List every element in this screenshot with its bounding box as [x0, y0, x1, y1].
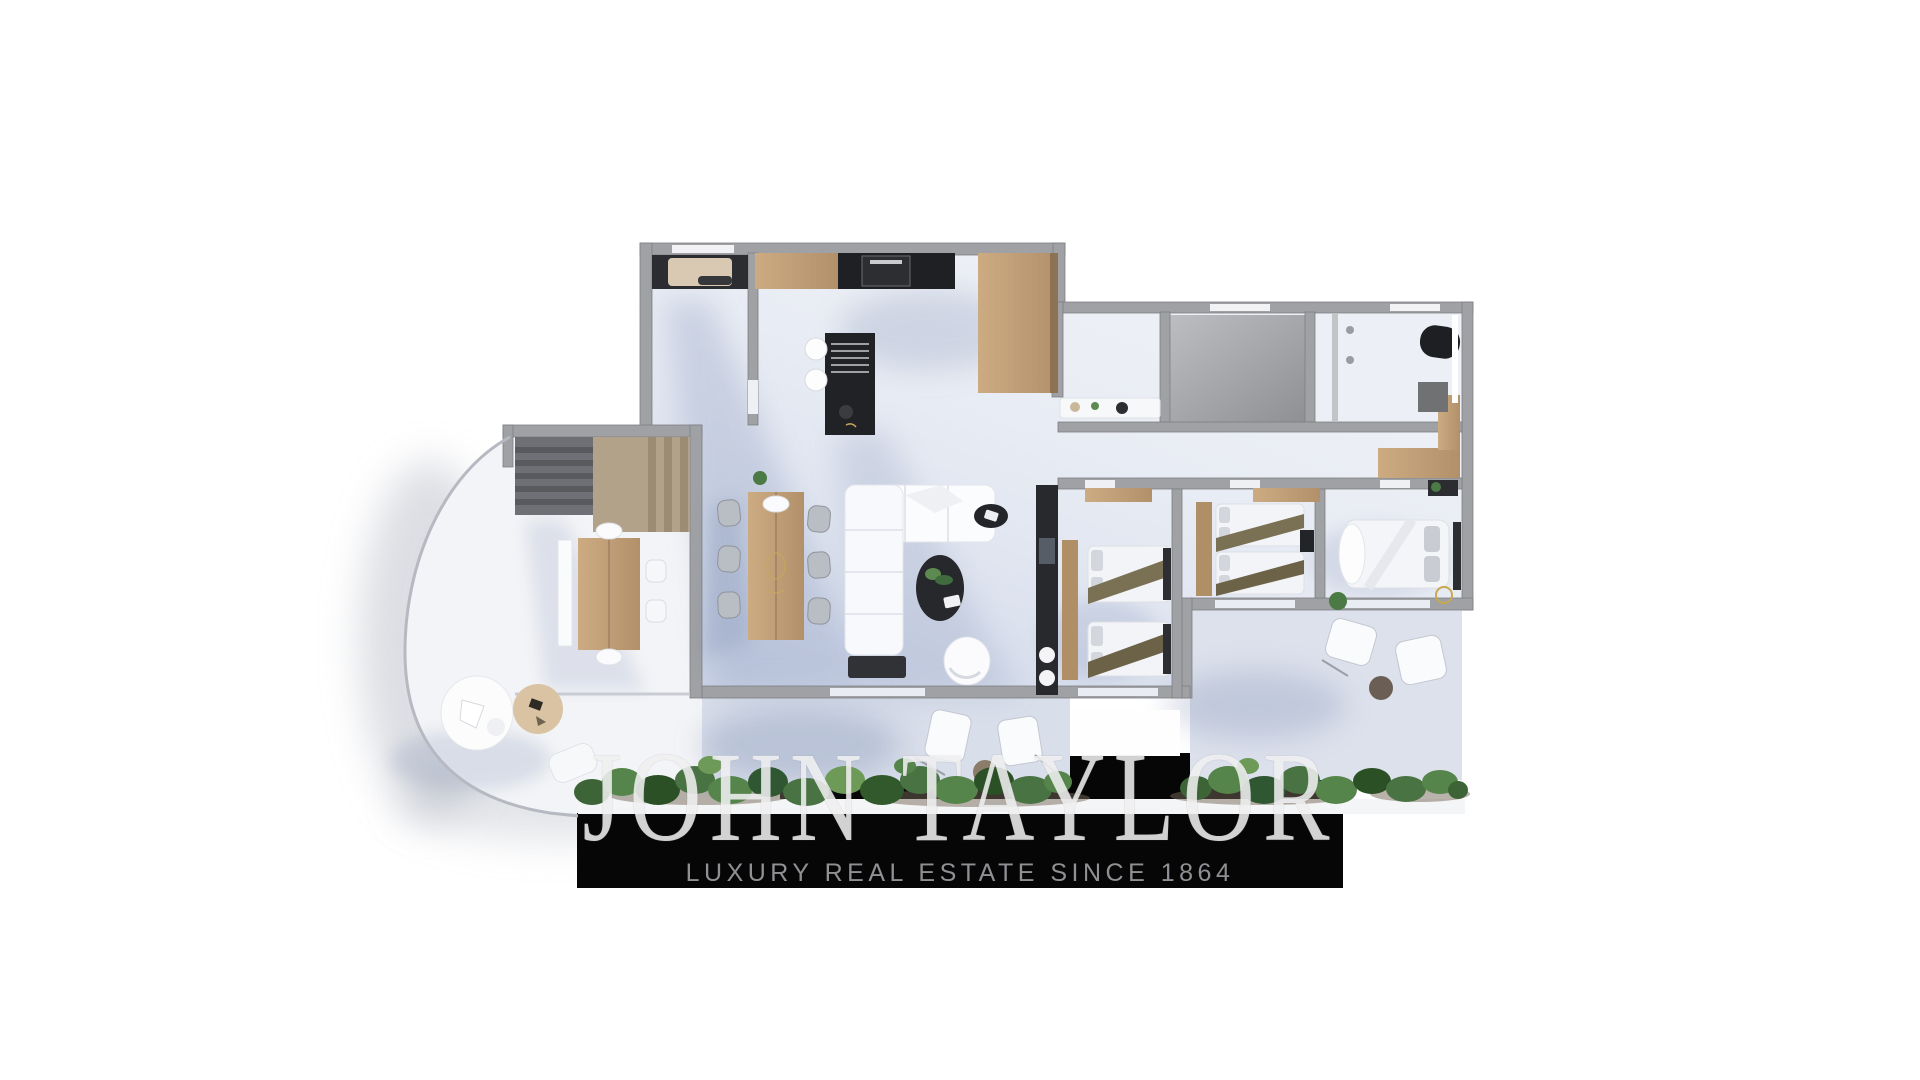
bed [1088, 622, 1170, 678]
bed-bench [1339, 524, 1365, 584]
wall-study-top [503, 425, 702, 437]
bed [1088, 546, 1170, 604]
headboard [1196, 502, 1212, 596]
pillow [1424, 556, 1440, 582]
plant-pot [753, 471, 767, 485]
study-bench [558, 540, 572, 646]
bed [1216, 552, 1304, 596]
floorplan-screenshot: JOHN TAYLOR LUXURY REAL ESTATE SINCE 186… [0, 0, 1920, 1080]
brand-tagline: LUXURY REAL ESTATE SINCE 1864 [660, 859, 1260, 888]
glass-panel [1452, 315, 1458, 403]
terrace-door-bed2 [1215, 600, 1295, 608]
study-chair [646, 560, 666, 582]
cooktop-detail [870, 260, 902, 264]
door-bed1 [1085, 480, 1115, 488]
stair-landing [593, 437, 690, 532]
basin [1346, 356, 1354, 364]
round-table [1369, 676, 1393, 700]
pouf [1039, 647, 1055, 663]
pouf [1039, 670, 1055, 686]
tv-wall-unit [1036, 485, 1058, 695]
bar-stool [805, 338, 827, 360]
sofa-seat [845, 485, 903, 655]
table-bowl [596, 523, 622, 539]
nightstand [1300, 530, 1314, 552]
pillow [1424, 526, 1440, 552]
wall-left-upper [640, 243, 652, 437]
bar-stool [805, 369, 827, 391]
utility-sink [698, 276, 732, 285]
wall-bathroom-left [1305, 312, 1315, 422]
window-top [672, 245, 734, 253]
wall-bed1-bed2 [1172, 489, 1182, 698]
headboard [1062, 540, 1078, 680]
vanity-plant [1431, 482, 1441, 492]
table-bowl [596, 649, 622, 665]
tv-screen [1039, 538, 1055, 564]
basin [1346, 326, 1354, 334]
wall-study-west [503, 425, 513, 467]
wall-closet-left [1160, 312, 1170, 422]
console-decor [1116, 402, 1128, 414]
study-chair [646, 600, 666, 622]
window-top-right [1210, 304, 1270, 311]
bed [1216, 504, 1304, 552]
wall-corridor [1058, 422, 1462, 432]
console-decor [1070, 402, 1080, 412]
kitchen-tall-unit [978, 253, 1058, 393]
walkin-closet-floor [1167, 315, 1305, 422]
door-entry [748, 380, 758, 414]
footboard-panel [1163, 624, 1171, 674]
kitchen-island [825, 333, 875, 435]
console-plant [1091, 402, 1099, 410]
terrace-door-master [1345, 600, 1430, 608]
dining-bowl [763, 496, 789, 512]
terrace-door-bed1 [1078, 688, 1158, 696]
wall-right [1462, 302, 1473, 610]
brand-wordmark: JOHN TAYLOR [560, 734, 1360, 862]
island-sink [839, 405, 853, 419]
terrace-door-living [830, 688, 925, 696]
window-bathroom [1390, 304, 1440, 311]
coffee-table [916, 555, 964, 621]
outdoor-lounger [1394, 634, 1448, 687]
daybed-cushion [487, 718, 505, 736]
hallway-console-group [1060, 398, 1160, 418]
door-bed2 [1230, 480, 1260, 488]
plant-pot [1329, 592, 1347, 610]
floorplan-render [0, 0, 1920, 1080]
tv-console [848, 656, 906, 678]
shower-partition [1332, 313, 1338, 421]
wall-bed2-bed3 [1315, 489, 1325, 598]
desk-wood [1378, 448, 1460, 478]
kitchen-unit-edge [1050, 253, 1058, 393]
landing-steps [648, 437, 688, 532]
shelf [1253, 488, 1320, 502]
kitchen-cabinets [755, 253, 838, 289]
shower-tray [1418, 382, 1448, 412]
tv-panel [1453, 522, 1461, 590]
door-master [1380, 480, 1410, 488]
footboard-panel [1163, 548, 1171, 600]
shelf [1085, 488, 1152, 502]
tv-wall [1036, 485, 1058, 695]
